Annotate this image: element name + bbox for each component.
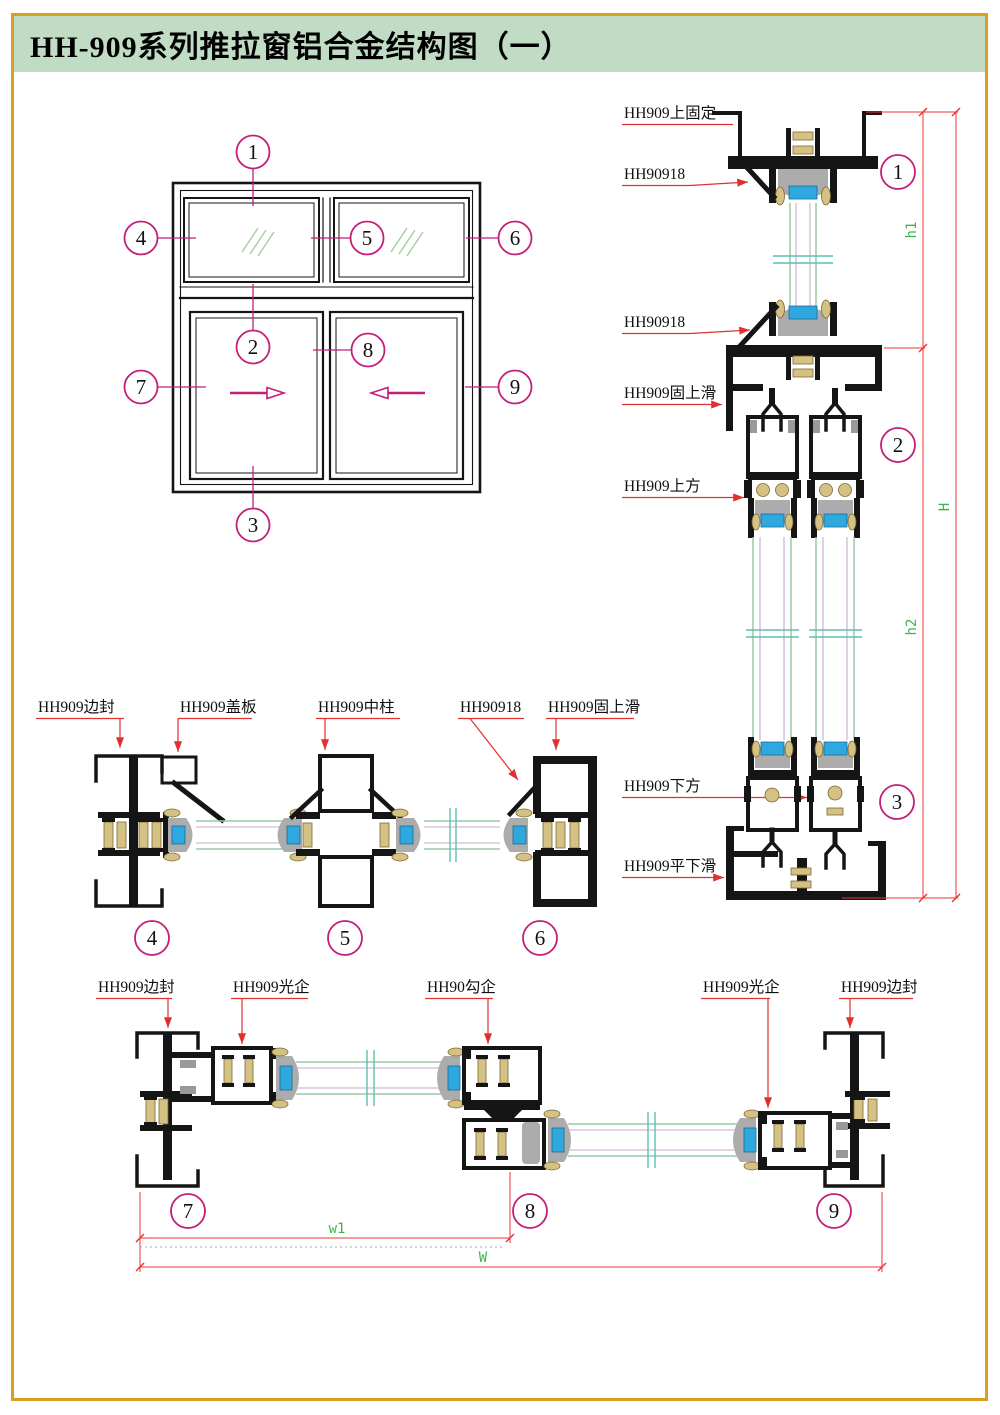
sliding-glazing-left (746, 537, 799, 740)
svg-text:5: 5 (362, 226, 373, 250)
svg-text:HH90勾企: HH90勾企 (427, 978, 496, 996)
callout-2: 2 (237, 331, 270, 364)
label-center-mullion: HH909中柱 (316, 698, 400, 750)
dim-W: W (479, 1250, 488, 1266)
callout-8: 8 (352, 334, 385, 367)
svg-text:HH909盖板: HH909盖板 (180, 698, 257, 716)
svg-text:9: 9 (829, 1199, 840, 1223)
interlock-teeth (464, 1100, 540, 1118)
svg-text:6: 6 (510, 226, 521, 250)
label-bottom-track: HH909平下滑 (622, 857, 724, 878)
callout-section-9: 9 (817, 1194, 851, 1228)
callout-3: 3 (237, 509, 270, 542)
label-edge-seal: HH909边封 (36, 698, 124, 748)
slide-direction-right-icon (230, 388, 284, 399)
svg-text:9: 9 (510, 375, 521, 399)
svg-text:HH909固上滑: HH909固上滑 (624, 384, 716, 402)
svg-text:HH909固上滑: HH909固上滑 (548, 698, 640, 716)
svg-text:HH909光企: HH909光企 (233, 978, 310, 996)
label-glide-left: HH909光企 (231, 978, 310, 1044)
label-glide-right: HH909光企 (701, 978, 780, 1108)
svg-text:HH909平下滑: HH909平下滑 (624, 857, 716, 875)
callout-section-1: 1 (881, 155, 915, 189)
sliding-sash-right (330, 312, 463, 479)
callout-section-3: 3 (880, 785, 914, 819)
glass-hatch-icon (242, 228, 274, 256)
label-edge-seal-right: HH909边封 (839, 978, 918, 1028)
roller (765, 788, 779, 802)
svg-text:1: 1 (893, 160, 904, 184)
callout-section-2: 2 (881, 428, 915, 462)
callout-7: 7 (125, 371, 158, 404)
callout-section-8: 8 (513, 1194, 547, 1228)
profile-edge-seal-bottom-right (825, 1033, 890, 1186)
glazing-upper-run (272, 1048, 464, 1108)
horizontal-section-bottom: HH909边封 HH909光企 HH90勾企 HH909光企 HH909边封 (96, 978, 918, 1272)
profile-sash-top-right (807, 417, 864, 538)
dim-w1: w1 (329, 1221, 346, 1237)
profile-edge-seal-bottom-left (137, 1033, 212, 1186)
svg-text:6: 6 (535, 926, 546, 950)
callout-9: 9 (499, 371, 532, 404)
svg-text:HH909边封: HH909边封 (98, 978, 175, 996)
svg-text:HH909光企: HH909光企 (703, 978, 780, 996)
glass-hatch-icon (391, 228, 423, 256)
callout-4: 4 (125, 222, 158, 255)
callout-leaders (158, 169, 499, 509)
drawing-page: HH-909系列推拉窗铝合金结构图（一） (0, 0, 1000, 1415)
callout-5: 5 (351, 222, 384, 255)
sliding-glazing-right (809, 537, 862, 740)
glazing-run-left (163, 809, 306, 861)
profile-sash-bottom-right (807, 737, 864, 830)
svg-text:1: 1 (248, 140, 259, 164)
gasket (793, 132, 813, 140)
dim-h1: h1 (904, 222, 920, 239)
profile-hook-lock (464, 1048, 544, 1168)
svg-text:3: 3 (892, 790, 903, 814)
svg-text:HH909边封: HH909边封 (841, 978, 918, 996)
hh90918-brace-lower (741, 300, 837, 345)
callout-section-5: 5 (328, 921, 362, 955)
glass-spacer (789, 186, 817, 199)
svg-text:4: 4 (136, 226, 147, 250)
dim-H: H (937, 503, 953, 511)
svg-text:HH909上固定: HH909上固定 (624, 104, 716, 122)
svg-text:8: 8 (525, 1199, 536, 1223)
glazing-run-right (392, 786, 536, 862)
profile-glide-left (213, 1048, 276, 1103)
svg-text:8: 8 (363, 338, 374, 362)
profile-top-fixed (714, 113, 880, 205)
svg-text:2: 2 (893, 433, 904, 457)
profile-fixed-track-jamb (533, 756, 597, 907)
svg-text:4: 4 (147, 926, 158, 950)
svg-text:HH90918: HH90918 (624, 314, 685, 331)
label-edge-seal-left: HH909边封 (96, 978, 175, 1028)
label-hh90918: HH90918 (458, 699, 524, 780)
svg-text:2: 2 (248, 335, 259, 359)
profile-center-mullion (292, 756, 400, 906)
label-hh90918-lower: HH90918 (622, 314, 750, 334)
svg-text:HH909下方: HH909下方 (624, 777, 701, 795)
callout-section-7: 7 (171, 1194, 205, 1228)
vertical-section: HH909上固定 HH90918 HH90918 HH909固上滑 HH909上… (622, 104, 960, 902)
structural-drawing: 1 4 5 6 2 8 7 (0, 0, 1000, 1415)
label-fixed-track-jamb: HH909固上滑 (546, 698, 640, 750)
svg-text:HH909中柱: HH909中柱 (318, 698, 395, 716)
svg-text:HH90918: HH90918 (624, 166, 685, 183)
window-elevation: 1 4 5 6 2 8 7 (125, 136, 532, 542)
profile-sash-top-left (744, 417, 801, 538)
svg-text:HH90918: HH90918 (460, 699, 521, 716)
dim-h2: h2 (904, 619, 920, 636)
profile-sash-bottom-left (744, 737, 801, 830)
callout-section-4: 4 (135, 921, 169, 955)
slide-direction-left-icon (371, 388, 425, 399)
profile-glide-right (760, 1113, 830, 1168)
callout-section-6: 6 (523, 921, 557, 955)
profile-bottom-track (726, 826, 886, 900)
horizontal-section-middle: HH909边封 HH909盖板 HH909中柱 HH90918 HH909固上滑 (36, 698, 640, 955)
label-fixed-top-track: HH909固上滑 (622, 384, 722, 405)
callout-1: 1 (237, 136, 270, 169)
label-cover-plate: HH909盖板 (178, 698, 257, 752)
svg-text:7: 7 (183, 1199, 194, 1223)
profile-edge-seal-left (96, 756, 163, 907)
svg-text:HH909上方: HH909上方 (624, 477, 701, 495)
svg-text:7: 7 (136, 375, 147, 399)
svg-text:HH909边封: HH909边封 (38, 698, 115, 716)
label-hook-lock: HH90勾企 (425, 978, 496, 1044)
fixed-pane-left (184, 198, 319, 282)
svg-text:5: 5 (340, 926, 351, 950)
label-sash-top: HH909上方 (622, 477, 744, 498)
callout-6: 6 (499, 222, 532, 255)
glazing-lower-run (544, 1110, 760, 1170)
svg-text:3: 3 (248, 513, 259, 537)
dimension-width: w1 W (136, 1172, 886, 1272)
